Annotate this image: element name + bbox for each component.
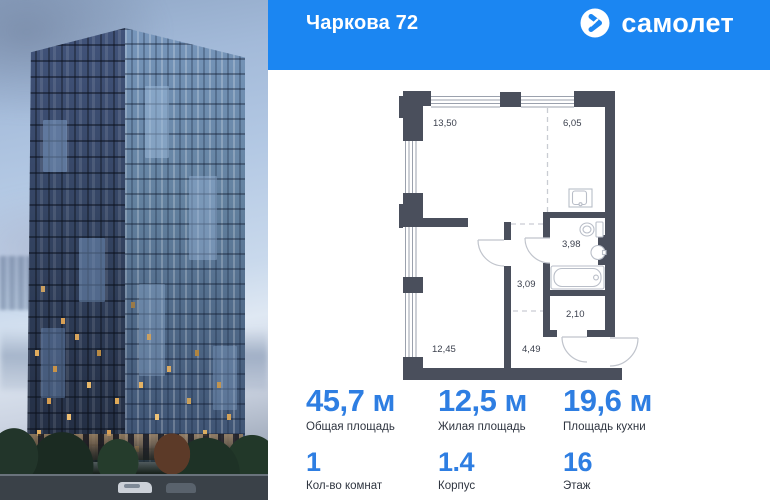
lit-windows: [27, 28, 31, 34]
stat-value: 1.4: [438, 448, 563, 476]
car: [118, 482, 152, 493]
floor-plan: 13,50 6,05 3,98 3,09 2,10 12,45 4,49: [398, 86, 644, 386]
building-photo: [0, 0, 268, 500]
project-title: Чаркова 72: [306, 12, 418, 35]
car: [166, 483, 196, 493]
header-bar: Чаркова 72 самолет: [268, 0, 770, 70]
stat-value: 19,6 м: [563, 385, 652, 417]
room-area-label: 6,05: [563, 118, 582, 129]
stat-label: Площадь кухни: [563, 421, 652, 433]
residential-tower: [27, 28, 245, 462]
stat-value: 45,7 м: [306, 385, 438, 417]
listing-card[interactable]: Чаркова 72 самолет: [0, 0, 770, 500]
room-area-label: 13,50: [433, 118, 457, 129]
stat-label: Жилая площадь: [438, 421, 563, 433]
info-panel: Чаркова 72 самолет: [268, 0, 770, 500]
brand-logo: самолет: [578, 6, 734, 40]
room-area-label: 12,45: [432, 344, 456, 355]
bathtub-icon: [551, 266, 604, 289]
stat-label: Корпус: [438, 480, 563, 492]
stat-label: Кол-во комнат: [306, 480, 438, 492]
stat-label: Общая площадь: [306, 421, 438, 433]
stat-kitchen-area: 19,6 м Площадь кухни: [563, 385, 652, 433]
detail-stats-row: 1 Кол-во комнат 1.4 Корпус 16 Этаж: [306, 448, 592, 492]
brand-name: самолет: [621, 8, 734, 39]
stat-building: 1.4 Корпус: [438, 448, 563, 492]
stat-living-area: 12,5 м Жилая площадь: [438, 385, 563, 433]
stat-value: 16: [563, 448, 592, 476]
stat-label: Этаж: [563, 480, 592, 492]
room-area-label: 4,49: [522, 344, 541, 355]
toilet-icon: [580, 222, 603, 237]
stat-total-area: 45,7 м Общая площадь: [306, 385, 438, 433]
stat-floor: 16 Этаж: [563, 448, 592, 492]
stat-rooms-count: 1 Кол-во комнат: [306, 448, 438, 492]
kitchen-sink-icon: [569, 189, 592, 207]
stat-value: 1: [306, 448, 438, 476]
room-area-label: 3,98: [562, 239, 581, 250]
room-area-label: 3,09: [517, 279, 536, 290]
stat-value: 12,5 м: [438, 385, 563, 417]
area-stats-row: 45,7 м Общая площадь 12,5 м Жилая площад…: [306, 385, 652, 433]
room-area-label: 2,10: [566, 309, 585, 320]
samolet-logo-icon: [578, 6, 612, 40]
